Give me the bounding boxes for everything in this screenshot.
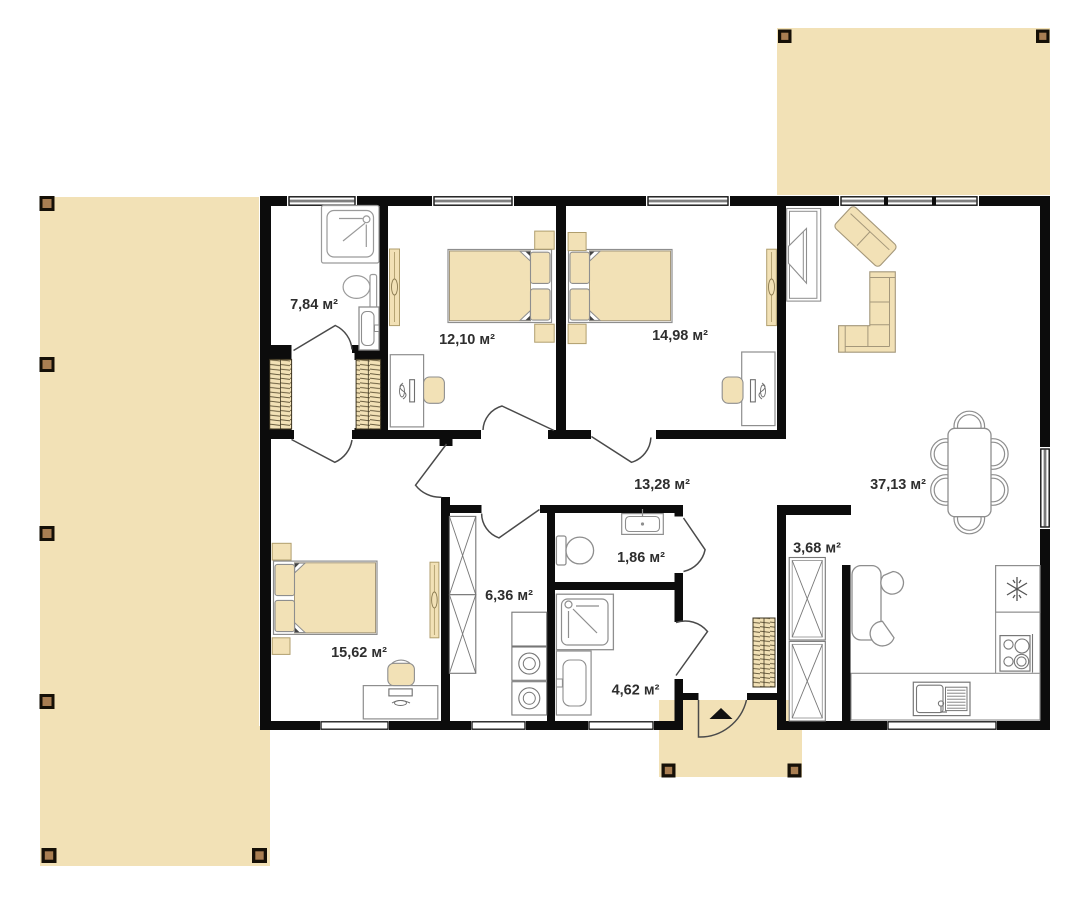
svg-text:15,62 м²: 15,62 м²	[331, 645, 387, 661]
svg-text:7,84 м²: 7,84 м²	[290, 297, 338, 313]
svg-text:12,10 м²: 12,10 м²	[439, 332, 495, 348]
svg-text:3,68 м²: 3,68 м²	[793, 541, 841, 557]
svg-text:13,28 м²: 13,28 м²	[634, 477, 690, 493]
svg-text:1,86 м²: 1,86 м²	[617, 550, 665, 566]
svg-text:6,36 м²: 6,36 м²	[485, 588, 533, 604]
svg-text:14,98 м²: 14,98 м²	[652, 328, 708, 344]
svg-text:37,13 м²: 37,13 м²	[870, 477, 926, 493]
svg-text:4,62 м²: 4,62 м²	[612, 683, 660, 699]
